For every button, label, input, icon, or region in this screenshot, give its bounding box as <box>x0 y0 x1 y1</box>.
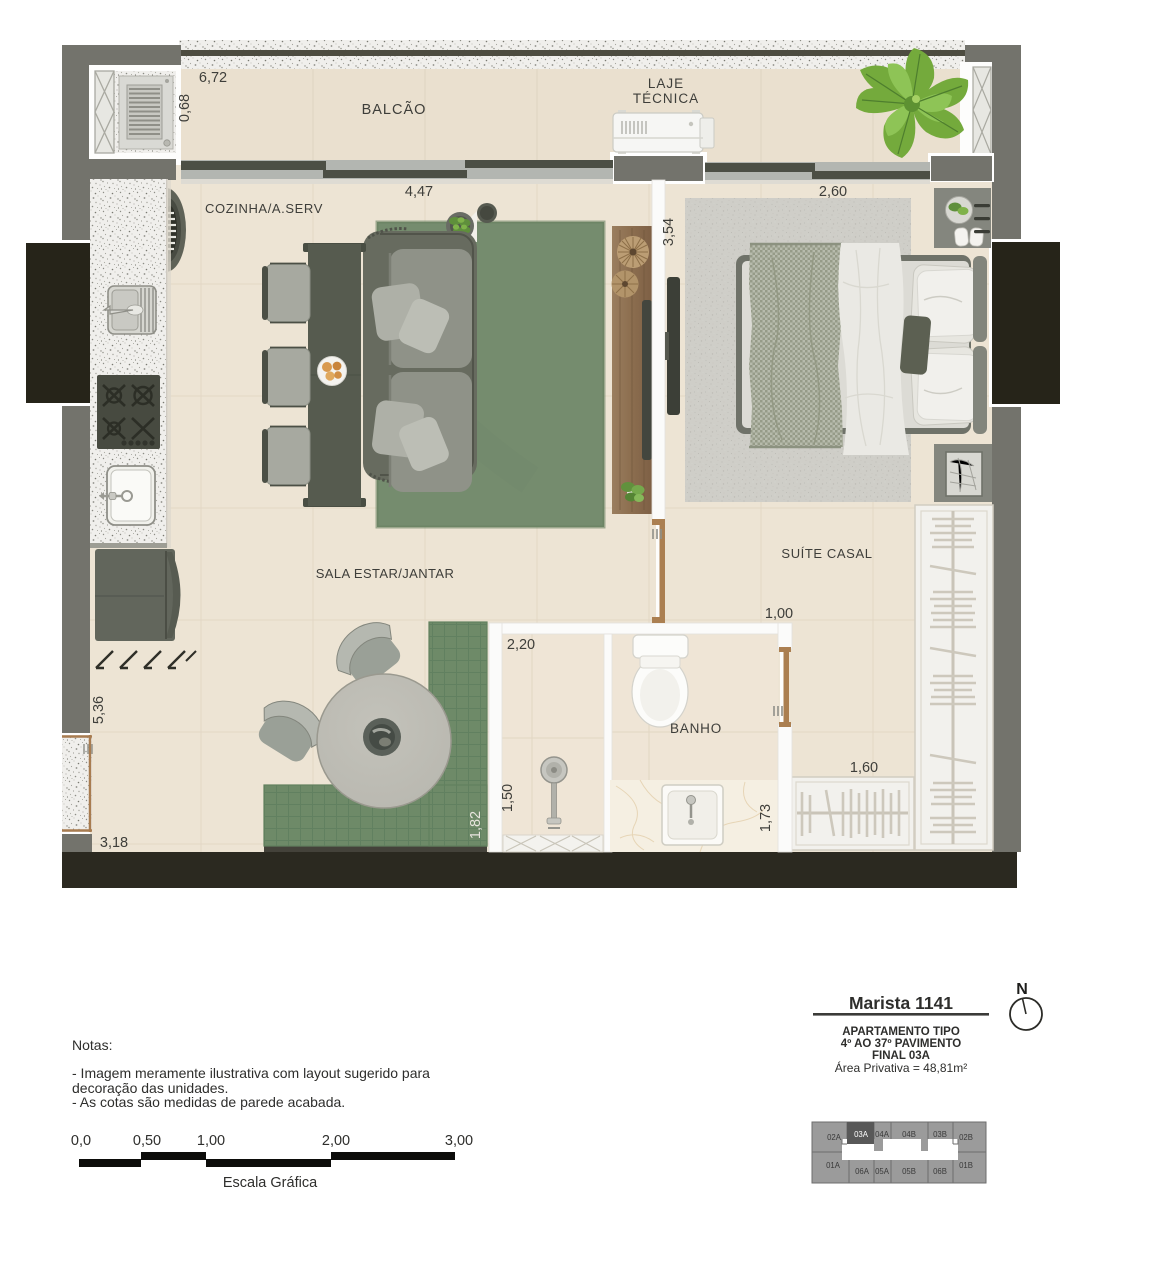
svg-text:Marista 1141: Marista 1141 <box>849 993 953 1013</box>
svg-text:06B: 06B <box>933 1167 947 1176</box>
svg-text:Escala Gráfica: Escala Gráfica <box>223 1175 318 1191</box>
svg-text:5,36: 5,36 <box>91 696 107 724</box>
svg-text:COZINHA/A.SERV: COZINHA/A.SERV <box>205 201 323 216</box>
svg-text:APARTAMENTO TIPO: APARTAMENTO TIPO <box>842 1026 960 1038</box>
svg-text:- Imagem meramente ilustrativa: - Imagem meramente ilustrativa com layou… <box>72 1065 430 1081</box>
svg-text:TÉCNICA: TÉCNICA <box>633 91 699 106</box>
svg-text:2,00: 2,00 <box>322 1133 350 1149</box>
svg-text:N: N <box>1016 981 1028 998</box>
svg-text:1,00: 1,00 <box>197 1133 225 1149</box>
svg-text:1,60: 1,60 <box>850 760 878 776</box>
svg-text:05A: 05A <box>875 1167 890 1176</box>
svg-text:01B: 01B <box>959 1161 973 1170</box>
svg-text:1,82: 1,82 <box>468 811 484 839</box>
svg-text:03B: 03B <box>933 1130 947 1139</box>
svg-text:0,68: 0,68 <box>177 94 193 122</box>
svg-text:4,47: 4,47 <box>405 184 433 200</box>
svg-text:06A: 06A <box>855 1167 870 1176</box>
svg-text:04A: 04A <box>875 1130 890 1139</box>
svg-text:2,60: 2,60 <box>819 184 847 200</box>
svg-text:SALA ESTAR/JANTAR: SALA ESTAR/JANTAR <box>316 566 455 581</box>
svg-text:2,20: 2,20 <box>507 637 535 653</box>
svg-text:01A: 01A <box>826 1161 841 1170</box>
svg-text:04B: 04B <box>902 1130 916 1139</box>
svg-text:02A: 02A <box>827 1133 842 1142</box>
svg-text:BANHO: BANHO <box>670 721 722 736</box>
svg-text:- As cotas são medidas de pare: - As cotas são medidas de parede acabada… <box>72 1094 345 1110</box>
svg-text:6,72: 6,72 <box>199 70 227 86</box>
svg-text:Área Privativa = 48,81m²: Área Privativa = 48,81m² <box>835 1060 967 1075</box>
svg-text:3,00: 3,00 <box>445 1133 473 1149</box>
svg-text:1,00: 1,00 <box>765 606 793 622</box>
svg-text:03A: 03A <box>854 1130 869 1139</box>
svg-text:3,18: 3,18 <box>100 835 128 851</box>
svg-text:Notas:: Notas: <box>72 1037 112 1053</box>
svg-text:1,73: 1,73 <box>758 804 774 832</box>
svg-text:1,50: 1,50 <box>500 784 516 812</box>
svg-text:3,54: 3,54 <box>661 218 677 246</box>
svg-text:LAJE: LAJE <box>648 76 684 91</box>
svg-text:0,0: 0,0 <box>71 1133 91 1149</box>
svg-text:4º AO 37º PAVIMENTO: 4º AO 37º PAVIMENTO <box>841 1038 962 1050</box>
svg-text:SUÍTE CASAL: SUÍTE CASAL <box>781 546 872 561</box>
svg-text:05B: 05B <box>902 1167 916 1176</box>
svg-text:02B: 02B <box>959 1133 973 1142</box>
svg-text:0,50: 0,50 <box>133 1133 161 1149</box>
svg-text:BALCÃO: BALCÃO <box>362 101 427 118</box>
